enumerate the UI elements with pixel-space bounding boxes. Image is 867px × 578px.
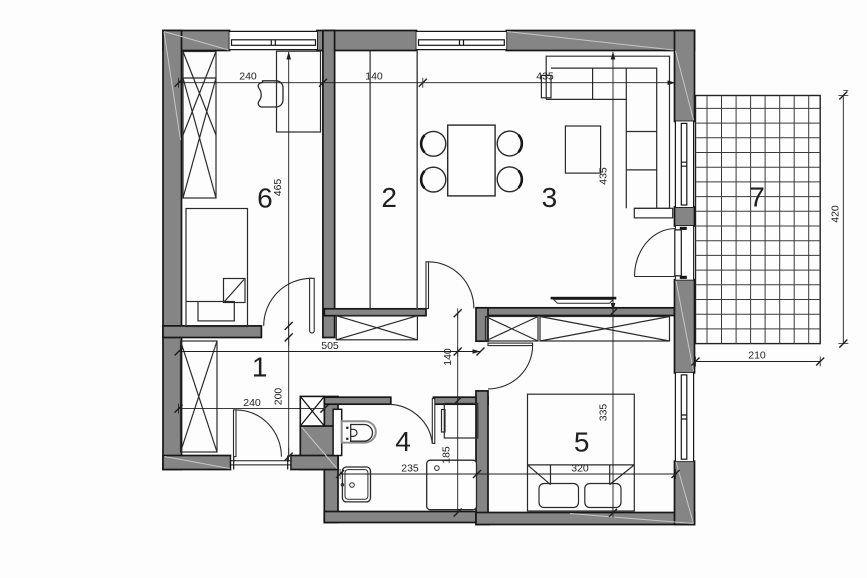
svg-text:465: 465 [272, 179, 284, 197]
svg-text:335: 335 [598, 404, 610, 422]
svg-text:140: 140 [365, 71, 383, 83]
svg-text:235: 235 [401, 463, 419, 475]
svg-text:320: 320 [571, 463, 589, 475]
svg-text:5: 5 [574, 427, 590, 458]
svg-text:200: 200 [273, 388, 285, 406]
svg-text:140: 140 [442, 348, 454, 366]
svg-text:505: 505 [321, 340, 339, 352]
svg-text:185: 185 [441, 446, 453, 464]
svg-text:3: 3 [542, 182, 558, 213]
svg-text:420: 420 [830, 205, 842, 223]
svg-text:6: 6 [257, 183, 273, 214]
svg-text:240: 240 [239, 71, 257, 83]
svg-text:435: 435 [536, 71, 554, 83]
svg-text:1: 1 [252, 352, 268, 383]
svg-text:4: 4 [395, 426, 411, 457]
svg-text:7: 7 [749, 182, 765, 213]
svg-text:2: 2 [381, 182, 397, 213]
svg-text:210: 210 [748, 350, 766, 362]
svg-text:240: 240 [243, 397, 261, 409]
svg-text:435: 435 [598, 167, 610, 185]
